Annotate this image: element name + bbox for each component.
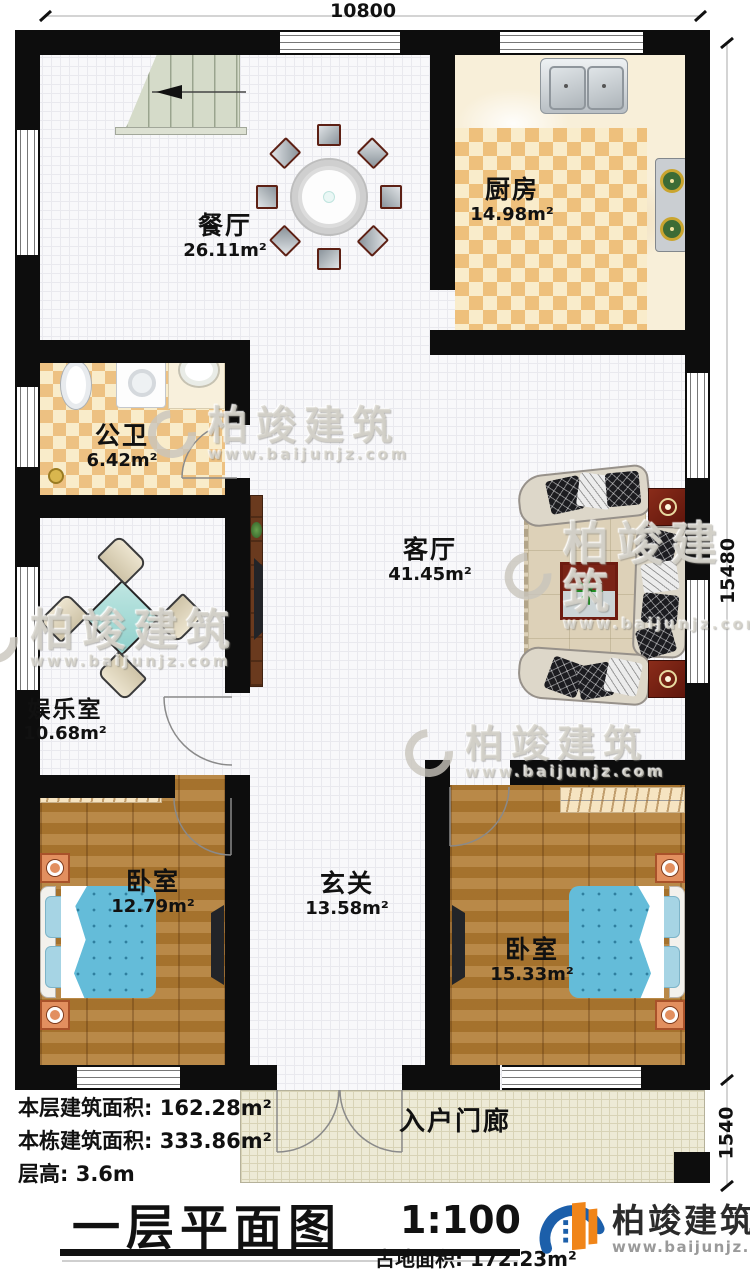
dining-chair [380, 185, 402, 209]
bed-right [569, 886, 685, 998]
wall [225, 340, 250, 425]
floor-plan-canvas: 餐厅26.11m² 厨房14.98m² 公卫6.42m² 客厅41.45m² 娱… [0, 0, 750, 1272]
page-title: 一层平面图 [72, 1188, 342, 1258]
brand-logo-icon [533, 1190, 611, 1262]
floor-drain [48, 468, 64, 484]
washer-door [128, 369, 156, 397]
window [77, 1065, 180, 1090]
window [280, 30, 400, 55]
wall [225, 495, 250, 693]
room-label-dining: 餐厅26.11m² [183, 212, 267, 261]
wall [15, 340, 250, 363]
nightstand [40, 853, 70, 883]
window [500, 30, 643, 55]
stove-burner [660, 169, 684, 193]
room-label-entertainment: 娱乐室10.68m² [23, 698, 107, 745]
dining-chair [317, 248, 341, 270]
floor-area-line: 本层建筑面积: 162.28m² [18, 1092, 272, 1122]
bedroom-right-tv [452, 905, 465, 985]
dim-tick [721, 1075, 733, 1085]
wall [430, 30, 455, 290]
building-area-label: 本栋建筑面积: [18, 1129, 152, 1153]
sofa-cushion [641, 592, 680, 626]
window [502, 1065, 641, 1090]
bedroom-left-tv [211, 905, 224, 985]
wall [402, 1065, 500, 1090]
wall [15, 30, 40, 130]
window [685, 373, 710, 478]
stove-burner [660, 217, 684, 241]
floor-height-line: 层高: 3.6m [18, 1158, 135, 1188]
room-label-bathroom: 公卫6.42m² [86, 422, 157, 471]
side-table [648, 488, 688, 526]
dim-tick [721, 38, 733, 48]
wall [425, 760, 450, 1065]
side-table [648, 660, 688, 698]
wall [685, 478, 710, 580]
plant-icon [251, 522, 262, 538]
floor-height-value: 3.6m [76, 1162, 135, 1186]
wall [510, 760, 710, 785]
dining-chair [317, 124, 341, 146]
wall [685, 30, 710, 373]
room-label-foyer: 玄关13.58m² [305, 870, 389, 919]
bed-blanket [569, 886, 655, 998]
window [685, 580, 710, 683]
sofa-cushion [640, 560, 680, 595]
floor-area-label: 本层建筑面积: [18, 1096, 152, 1120]
nightstand [655, 1000, 685, 1030]
floor-area-value: 162.28m² [160, 1096, 272, 1120]
plant-icon [573, 575, 605, 607]
brand-website: www.baijunjz.com [612, 1238, 750, 1256]
wall [685, 683, 710, 1090]
dimension-porch: 1540 [715, 1107, 737, 1160]
dimension-right: 15480 [717, 538, 739, 604]
dimension-top: 10800 [330, 0, 396, 22]
porch-column [674, 1152, 710, 1183]
wall [15, 690, 40, 1090]
room-label-bedroom-right: 卧室15.33m² [490, 936, 574, 985]
wardrobe [560, 787, 685, 813]
wall [430, 330, 710, 355]
window [15, 130, 40, 255]
nightstand [40, 1000, 70, 1030]
wall [641, 1065, 710, 1090]
wall [15, 495, 250, 518]
land-area-label: 占地面积: [375, 1247, 463, 1271]
bed-sheet-fold [638, 886, 664, 998]
toilet [60, 360, 92, 410]
wall [15, 1065, 77, 1090]
bed-sheet-fold [61, 886, 87, 998]
kitchen-sink [540, 58, 628, 114]
nightstand [655, 853, 685, 883]
dim-tick [695, 11, 706, 21]
dim-tick [721, 1181, 733, 1191]
building-area-value: 333.86m² [160, 1129, 272, 1153]
wall [15, 30, 280, 55]
room-label-bedroom-left: 卧室12.79m² [111, 868, 195, 917]
wall [225, 775, 250, 1065]
sofa-cushion [605, 471, 642, 508]
room-label-kitchen: 厨房14.98m² [470, 176, 554, 225]
kitchen-floor [455, 128, 647, 330]
floor-height-label: 层高: [18, 1162, 68, 1186]
dining-table-centerpiece [323, 191, 335, 203]
room-label-porch: 入户门廊 [399, 1108, 511, 1137]
window [15, 567, 40, 690]
sink-basin [549, 66, 586, 110]
living-tv [254, 558, 263, 640]
building-area-line: 本栋建筑面积: 333.86m² [18, 1125, 272, 1155]
wall [15, 775, 175, 798]
brand-name: 柏竣建筑 [612, 1194, 750, 1242]
window [15, 387, 40, 467]
staircase-rail [115, 127, 247, 135]
room-label-living: 客厅41.45m² [388, 536, 472, 585]
dining-chair [256, 185, 278, 209]
wall [15, 255, 40, 387]
sofa-cushion [603, 657, 643, 697]
sink-basin [587, 66, 624, 110]
kitchen-stove [655, 158, 688, 252]
dim-tick [40, 11, 51, 21]
wall [180, 1065, 277, 1090]
plan-scale: 1:100 [400, 1198, 521, 1242]
